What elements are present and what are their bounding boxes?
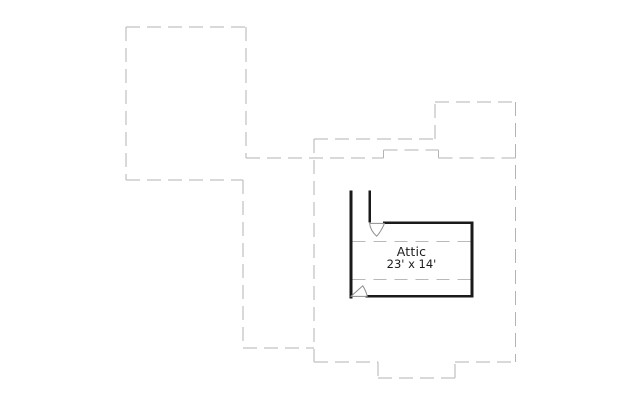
door-swing-top-icon [370, 223, 385, 236]
attic-room-walls [351, 192, 472, 298]
door-swing-symbols [351, 223, 385, 296]
door-swing-bottom-icon [351, 286, 367, 297]
roof-outline-dashed-lines [126, 27, 516, 378]
floor-plan-drawing [0, 0, 620, 415]
attic-floor-plan-canvas: Attic 23' x 14' [0, 0, 620, 415]
ceiling-break-lines [352, 241, 470, 279]
